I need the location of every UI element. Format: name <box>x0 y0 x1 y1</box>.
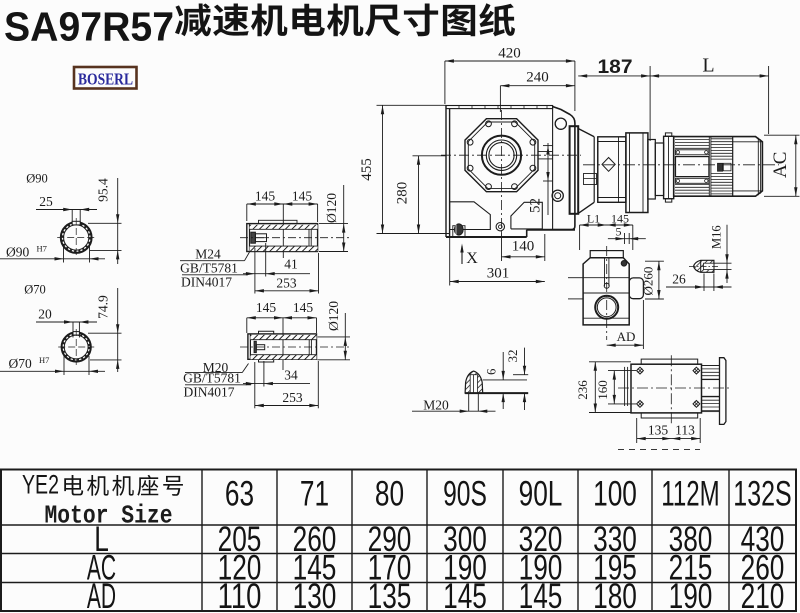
svg-text:301: 301 <box>487 266 510 282</box>
svg-text:AC: AC <box>770 152 791 178</box>
svg-text:455: 455 <box>359 158 375 181</box>
svg-text:145: 145 <box>519 577 563 613</box>
svg-text:135: 135 <box>368 577 412 613</box>
svg-text:M24: M24 <box>195 247 221 262</box>
svg-text:420: 420 <box>498 46 521 62</box>
svg-text:Ø120: Ø120 <box>324 193 339 223</box>
svg-text:25: 25 <box>39 194 53 209</box>
svg-text:M16: M16 <box>710 225 724 249</box>
svg-text:80: 80 <box>375 475 404 514</box>
svg-text:63: 63 <box>225 475 254 514</box>
svg-text:112M: 112M <box>661 475 719 514</box>
svg-text:DIN4017: DIN4017 <box>181 275 232 290</box>
svg-text:41: 41 <box>284 257 298 272</box>
svg-text:90L: 90L <box>519 475 563 514</box>
svg-text:236: 236 <box>575 380 590 400</box>
svg-text:135: 135 <box>648 423 669 438</box>
svg-text:Ø120: Ø120 <box>326 301 341 331</box>
svg-text:280: 280 <box>395 182 411 205</box>
svg-text:H7: H7 <box>39 355 49 365</box>
svg-text:145: 145 <box>611 212 629 226</box>
svg-text:190: 190 <box>669 577 713 613</box>
svg-text:180: 180 <box>593 577 637 613</box>
svg-text:145: 145 <box>292 189 313 204</box>
svg-text:187: 187 <box>598 57 633 78</box>
svg-text:71: 71 <box>300 475 329 514</box>
svg-text:253: 253 <box>276 276 297 291</box>
svg-text:M20: M20 <box>423 398 449 413</box>
svg-text:L: L <box>702 55 714 77</box>
svg-text:AD: AD <box>617 329 636 344</box>
svg-text:32: 32 <box>505 350 520 363</box>
svg-text:YE2: YE2 <box>22 470 59 500</box>
svg-text:253: 253 <box>282 390 303 405</box>
svg-text:H7: H7 <box>37 244 47 254</box>
svg-text:95.4: 95.4 <box>96 178 111 202</box>
svg-text:Ø70: Ø70 <box>9 356 32 371</box>
svg-text:160: 160 <box>595 380 610 400</box>
svg-text:Ø260: Ø260 <box>640 267 655 296</box>
svg-text:145: 145 <box>256 300 277 315</box>
svg-text:26: 26 <box>672 272 686 287</box>
svg-text:GB/T5781: GB/T5781 <box>180 261 238 276</box>
svg-text:74.9: 74.9 <box>96 295 111 319</box>
svg-text:Ø90: Ø90 <box>6 245 29 260</box>
svg-text:X: X <box>466 250 478 267</box>
svg-text:DIN4017: DIN4017 <box>184 384 235 399</box>
svg-text:132S: 132S <box>733 475 791 514</box>
svg-text:240: 240 <box>526 70 549 86</box>
svg-text:145: 145 <box>443 577 487 613</box>
svg-text:Ø70: Ø70 <box>24 283 46 297</box>
svg-text:145: 145 <box>293 300 314 315</box>
svg-text:140: 140 <box>512 239 535 255</box>
svg-text:SA97R57: SA97R57 <box>4 3 174 49</box>
svg-text:6: 6 <box>485 369 499 375</box>
svg-text:90S: 90S <box>443 475 487 514</box>
svg-text:BOSERL: BOSERL <box>78 70 133 89</box>
svg-text:100: 100 <box>593 475 637 514</box>
svg-text:110: 110 <box>218 577 262 613</box>
svg-text:130: 130 <box>293 577 337 613</box>
svg-text:52: 52 <box>528 198 544 213</box>
svg-text:AD: AD <box>87 577 116 613</box>
svg-text:210: 210 <box>741 577 785 613</box>
svg-text:20: 20 <box>38 307 52 322</box>
svg-text:145: 145 <box>255 189 276 204</box>
svg-text:34: 34 <box>284 367 298 382</box>
svg-text:Ø90: Ø90 <box>26 172 48 186</box>
svg-text:113: 113 <box>675 423 695 438</box>
svg-text:5: 5 <box>616 225 622 239</box>
